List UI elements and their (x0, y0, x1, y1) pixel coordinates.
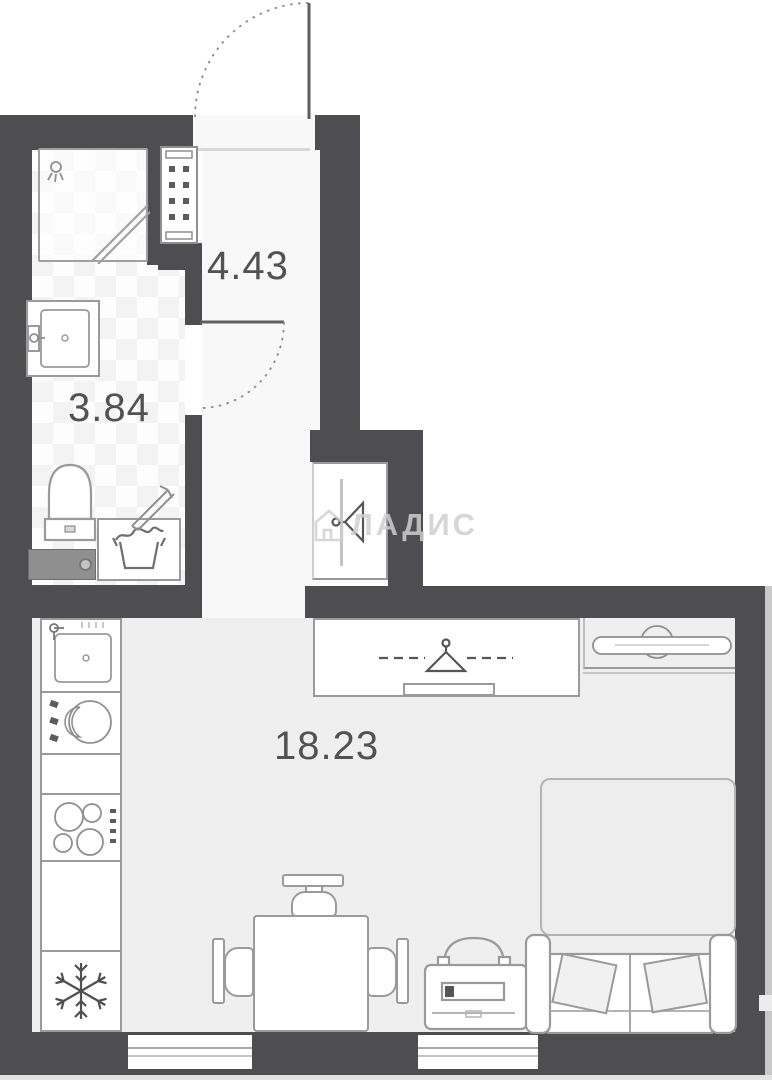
sofa (524, 930, 738, 1034)
towel-rail (126, 480, 178, 532)
watermark-text: ЛАДИС (351, 507, 478, 543)
wall-living-top (305, 586, 737, 618)
floor-plan: 4.43 3.84 18.23 ЛАДИС (0, 0, 772, 1080)
room-label-hallway: 4.43 (207, 244, 289, 289)
chair-seat (224, 947, 254, 997)
faucet-icon (28, 326, 45, 351)
rug (540, 778, 736, 936)
tv-console (583, 618, 735, 669)
bathroom-sink (26, 300, 100, 377)
wall-outer-edge-bottom (0, 1075, 772, 1080)
cooktop (40, 793, 122, 862)
wall-bath-right-upper (185, 257, 202, 325)
faucet-icon (50, 624, 64, 640)
living-wardrobe (313, 618, 580, 697)
room-label-living: 18.23 (274, 724, 379, 769)
shower-tray (38, 148, 148, 262)
floor-mat (28, 549, 96, 580)
chair-seat (291, 891, 337, 917)
window-frame-line (418, 1055, 538, 1057)
shower-screen-line (92, 205, 150, 264)
wall-right-upper-band (320, 115, 360, 433)
room-label-bathroom: 3.84 (68, 386, 150, 431)
chair-seat (367, 947, 397, 997)
wall-bottom (0, 1032, 772, 1075)
entrance-threshold (195, 148, 310, 151)
wall-top-left (0, 115, 193, 150)
wardrobe-door-notch (403, 683, 495, 696)
house-icon (314, 506, 344, 544)
window-frame-line (418, 1047, 538, 1049)
tv-console-front-line (583, 672, 735, 674)
vent-shaft (160, 146, 198, 244)
wall-bath-bottom (32, 585, 202, 618)
bathroom-door-arc (198, 318, 288, 412)
entrance-door-arc (192, 0, 314, 122)
snowflake-icon (42, 952, 120, 1030)
window-frame-line (128, 1047, 252, 1049)
vent-shaft-hatch (169, 166, 189, 220)
wall-left (0, 115, 32, 1075)
hanger-icon (371, 634, 521, 682)
chair-back (396, 938, 409, 1004)
tv-icon (585, 618, 735, 667)
window-1 (128, 1035, 252, 1069)
washing-machine (40, 691, 122, 755)
kitchen-counter-2 (40, 860, 122, 952)
kitchen-sink-cabinet (40, 618, 122, 693)
wall-bath-right-lower (185, 415, 202, 587)
dining-table (253, 915, 369, 1032)
kitchen-counter (40, 753, 122, 795)
window-2 (418, 1035, 538, 1069)
armchair (420, 933, 535, 1033)
mat-knob (79, 558, 92, 571)
fridge (40, 950, 122, 1032)
shower-head-icon (48, 162, 63, 182)
window-frame-line (128, 1055, 252, 1057)
watermark: ЛАДИС (314, 506, 478, 544)
wall-notch (759, 995, 772, 1011)
toilet (40, 460, 100, 546)
